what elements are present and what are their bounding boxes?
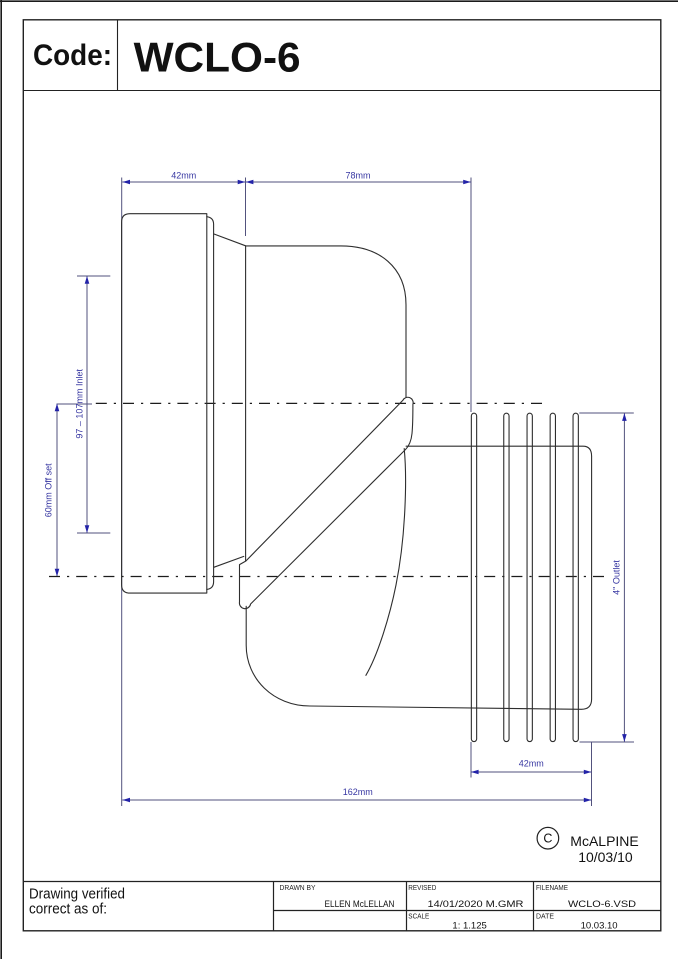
svg-text:42mm: 42mm (519, 759, 544, 769)
svg-text:42mm: 42mm (171, 171, 196, 181)
svg-text:FILENAME: FILENAME (536, 885, 568, 892)
svg-text:C: C (543, 832, 552, 846)
svg-text:1: 1.125: 1: 1.125 (452, 920, 486, 931)
svg-text:10.03.10: 10.03.10 (581, 920, 618, 931)
svg-text:78mm: 78mm (345, 171, 370, 181)
svg-text:ELLEN McLELLAN: ELLEN McLELLAN (325, 899, 395, 910)
svg-text:10/03/10: 10/03/10 (578, 849, 633, 865)
svg-text:60mm Off set: 60mm Off set (44, 463, 54, 517)
svg-text:97 – 107mm Inlet: 97 – 107mm Inlet (75, 369, 85, 439)
svg-text:SCALE: SCALE (408, 913, 429, 920)
svg-text:14/01/2020 M.GMR: 14/01/2020 M.GMR (428, 899, 524, 910)
svg-text:McALPINE: McALPINE (570, 833, 638, 849)
svg-text:DRAWN BY: DRAWN BY (280, 885, 316, 892)
svg-text:4" Outlet: 4" Outlet (612, 560, 622, 595)
svg-text:correct as of:: correct as of: (29, 901, 107, 918)
svg-text:Code:: Code: (33, 39, 112, 72)
svg-text:WCLO-6.VSD: WCLO-6.VSD (568, 899, 636, 910)
svg-text:DATE: DATE (536, 913, 554, 920)
svg-text:REVISED: REVISED (408, 885, 436, 892)
svg-text:WCLO-6: WCLO-6 (134, 33, 301, 80)
svg-text:162mm: 162mm (343, 787, 373, 797)
